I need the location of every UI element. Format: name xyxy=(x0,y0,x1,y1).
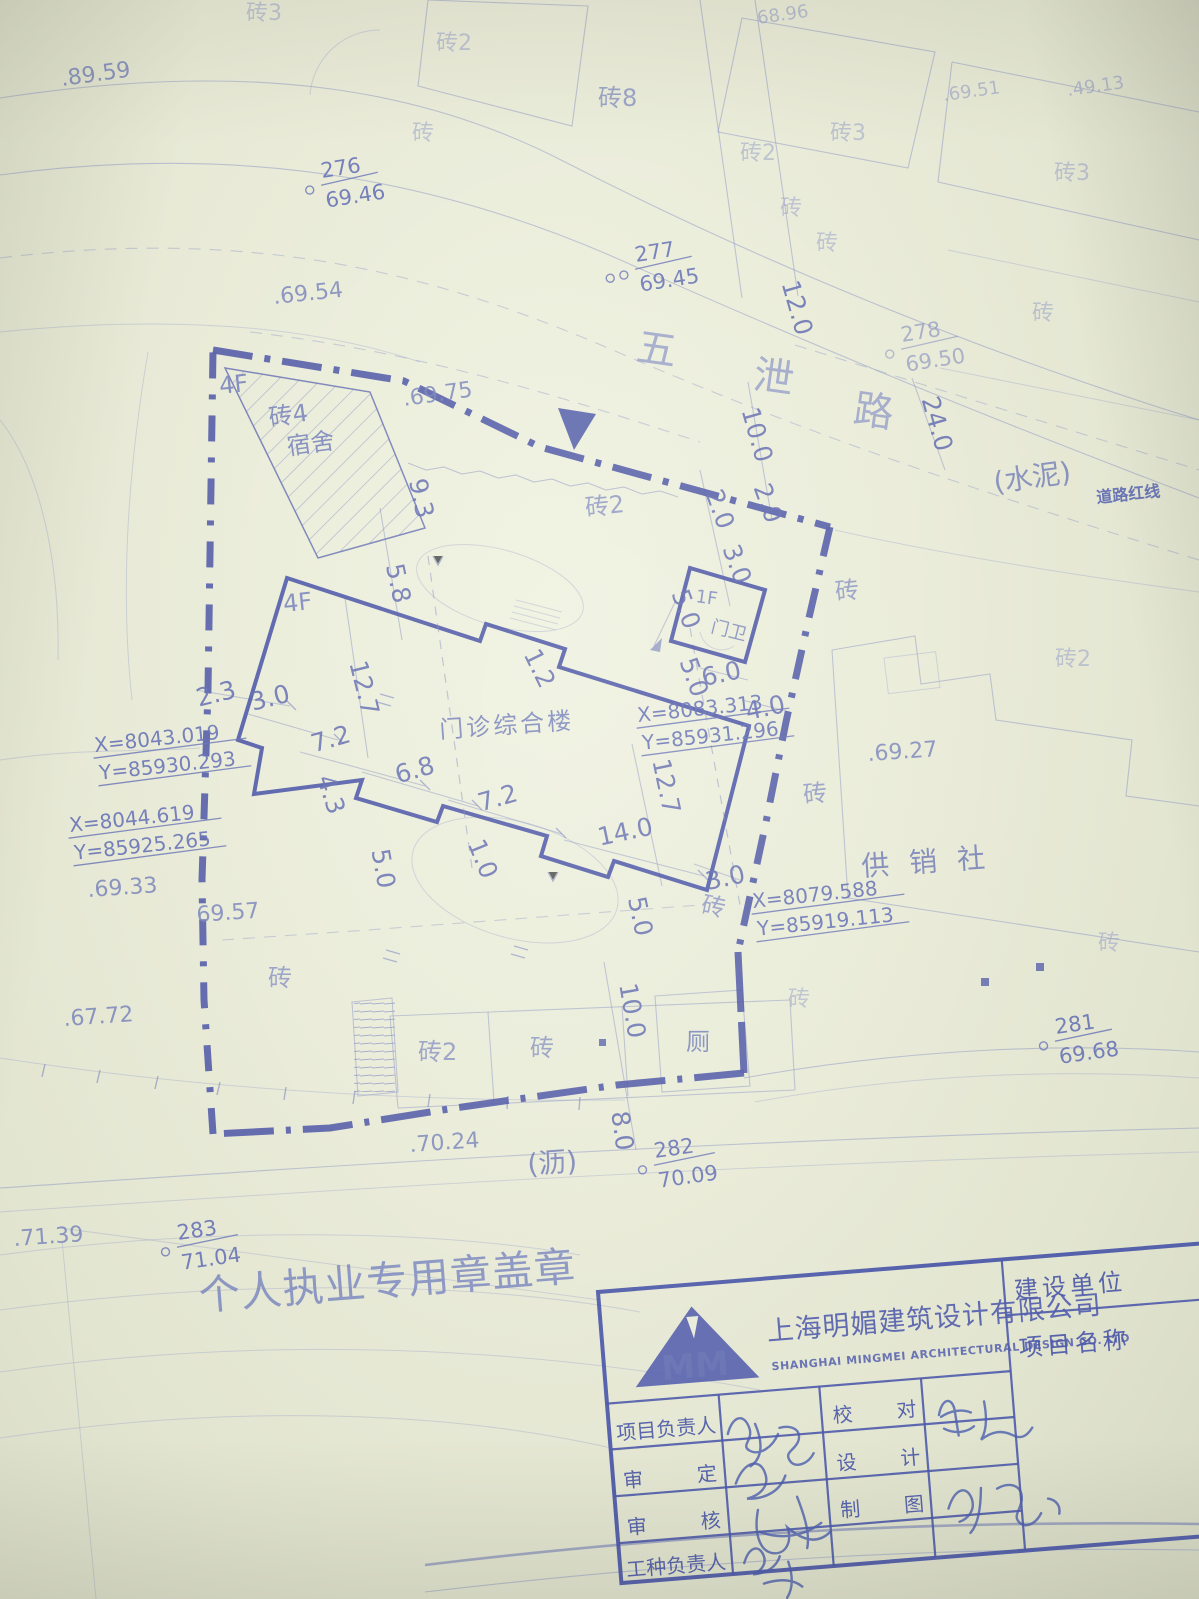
dimension: 7.2 xyxy=(475,778,521,817)
elevation-label: .69.54 xyxy=(272,278,344,310)
dimension: 12.7 xyxy=(646,756,686,816)
dimension: 3.0 xyxy=(717,540,758,587)
dimension: 5.8 xyxy=(380,561,417,606)
row-label-design: 设 xyxy=(836,1450,858,1476)
survey-point: 278 69.50 xyxy=(881,314,967,380)
toilet-label: 厕 xyxy=(686,1028,710,1056)
dimension: 10.0 xyxy=(613,981,651,1041)
dimension: 2.3 xyxy=(193,675,239,713)
survey-point: 282 70.09 xyxy=(635,1131,720,1195)
survey-point: 281 69.68 xyxy=(1036,1007,1121,1071)
dorm-floors: 4F xyxy=(218,369,250,400)
elevation-label: .69.33 xyxy=(87,873,159,903)
survey-point: 277 69.45 xyxy=(601,234,700,302)
dimension: 24.0 xyxy=(916,393,959,455)
material-label: 砖 xyxy=(268,964,292,992)
row-label-check: 校 xyxy=(832,1402,854,1428)
dimension: 6.8 xyxy=(392,750,438,789)
road-name-char: 五 xyxy=(634,324,680,375)
material-label: 砖 xyxy=(788,987,810,1012)
svg-text:69.68: 69.68 xyxy=(1058,1037,1121,1069)
elevation-label: 69.57 xyxy=(196,899,261,928)
dimension: 4.3 xyxy=(311,771,351,818)
material-label: 砖2 xyxy=(436,31,472,56)
svg-text:277: 277 xyxy=(633,237,676,267)
signature-pm xyxy=(727,1413,815,1471)
dimension: 3.0 xyxy=(703,859,748,896)
material-label: 砖2 xyxy=(740,141,776,166)
signature-review xyxy=(734,1458,831,1556)
site-plan-photo: 五 泄 路 门诊综合楼 4F 4F 砖4 宿舍 1F 门卫 供销社 厕 (水泥)… xyxy=(0,0,1199,1599)
material-label: 砖8 xyxy=(598,84,637,112)
dimension: 2.0 xyxy=(700,485,741,532)
row-label-check: 对 xyxy=(895,1397,917,1423)
material-label: 砖 xyxy=(412,121,434,146)
coordinate-label: X=8043.019 Y=85930.293 xyxy=(91,717,252,786)
material-label: 砖 xyxy=(1032,301,1054,326)
road-name-char: 泄 xyxy=(751,352,797,403)
gatehouse-label: 门卫 xyxy=(709,616,749,645)
company-logo: MM xyxy=(630,1302,760,1392)
elevation-label: .69.27 xyxy=(867,737,939,767)
dimension: 1.2 xyxy=(518,644,561,692)
elevation-label: .67.72 xyxy=(63,1002,135,1032)
road-name-char: 路 xyxy=(851,386,897,437)
material-label: 砖 xyxy=(834,576,861,606)
main-building-floors: 4F xyxy=(282,587,314,618)
coop-label: 供销社 xyxy=(860,840,1006,883)
elevation-label: .69.51 xyxy=(942,77,1002,106)
material-label: 砖 xyxy=(530,1034,554,1062)
dimension: 7.2 xyxy=(308,719,354,758)
dimension: 6.0 xyxy=(699,655,744,692)
svg-text:70.09: 70.09 xyxy=(657,1161,720,1193)
material-label: 砖3 xyxy=(1054,161,1090,186)
dimension: 5.0 xyxy=(622,894,659,939)
survey-point: 276 69.46 xyxy=(301,150,387,216)
title-block: MM 上海明媚建筑设计有限公司 SHANGHAI MINGMEI ARCHITE… xyxy=(598,1234,1199,1599)
row-label-review: 审 xyxy=(626,1514,648,1540)
svg-text:69.46: 69.46 xyxy=(324,179,387,212)
material-label: 砖 xyxy=(816,231,838,256)
material-label: 砖 xyxy=(780,196,802,221)
dimension: 12.7 xyxy=(343,657,385,718)
material-label: 砖2 xyxy=(584,490,626,522)
material-label: 砖3 xyxy=(246,1,282,26)
dimension: 2.0 xyxy=(748,479,789,526)
signature-check xyxy=(938,1394,1033,1443)
dimension: 8.0 xyxy=(605,1109,639,1152)
owner-label: 建设单位 xyxy=(1013,1268,1127,1305)
row-label-draft: 图 xyxy=(903,1492,925,1518)
material-label: 砖2 xyxy=(418,1038,457,1066)
cement-label: (水泥) xyxy=(991,455,1073,499)
elevation-label: 68.96 xyxy=(756,1,810,29)
main-building-label: 门诊综合楼 xyxy=(438,707,575,744)
asphalt-label: (沥) xyxy=(526,1145,578,1181)
material-label: 砖2 xyxy=(1055,647,1091,672)
dormitory-hatched xyxy=(225,368,425,558)
dimension: 10.0 xyxy=(736,404,779,466)
site-plan-drawing: 五 泄 路 门诊综合楼 4F 4F 砖4 宿舍 1F 门卫 供销社 厕 (水泥)… xyxy=(0,0,1199,1599)
row-label-draft: 制 xyxy=(839,1497,861,1523)
row-label-pm: 项目负责人 xyxy=(615,1413,717,1445)
svg-text:278: 278 xyxy=(899,317,942,347)
map-annotations: 五 泄 路 门诊综合楼 4F 4F 砖4 宿舍 1F 门卫 供销社 厕 (水泥)… xyxy=(13,1,1161,1277)
material-label: 砖 xyxy=(802,779,829,809)
row-label-review: 核 xyxy=(700,1508,722,1534)
material-label: 砖 xyxy=(1098,931,1120,956)
dimension: 5.0 xyxy=(366,846,401,890)
survey-point: 283 71.04 xyxy=(158,1213,243,1277)
row-label-approve: 审 xyxy=(622,1467,644,1493)
material-label: 砖 xyxy=(699,890,728,922)
row-label-approve: 定 xyxy=(696,1461,718,1487)
redline-label: 道路红线 xyxy=(1095,481,1161,507)
coordinate-label: X=8079.588 Y=85919.113 xyxy=(749,873,910,942)
dimension: 12.0 xyxy=(776,277,819,339)
dimension: 14.0 xyxy=(595,812,655,852)
project-name-label: 项目名称 xyxy=(1018,1325,1132,1362)
dorm-material: 砖4 xyxy=(267,399,310,432)
material-label: 砖3 xyxy=(830,121,866,146)
elevation-label: .69.75 xyxy=(401,377,474,411)
svg-text:MM: MM xyxy=(660,1344,731,1389)
elevation-label: .70.24 xyxy=(409,1128,481,1158)
elevation-label: .49.13 xyxy=(1066,72,1126,101)
svg-text:281: 281 xyxy=(1053,1010,1096,1039)
dimension: 1.0 xyxy=(462,835,504,883)
entrance-arrow xyxy=(558,408,596,450)
elevation-label: .71.39 xyxy=(13,1222,85,1252)
row-label-design: 计 xyxy=(899,1445,921,1471)
elevation-label: .89.59 xyxy=(59,57,132,91)
